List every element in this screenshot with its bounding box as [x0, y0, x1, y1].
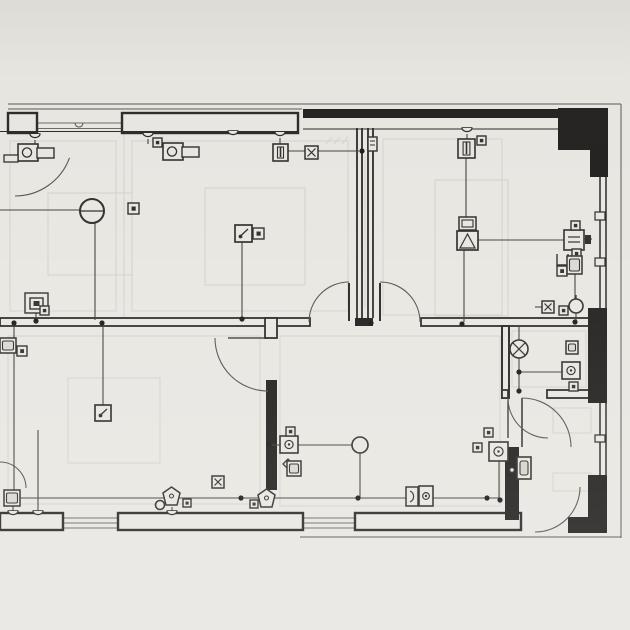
door-arc [309, 282, 349, 322]
wall-pier [266, 380, 277, 490]
small-box-dot [253, 503, 256, 506]
window-vent-icon [75, 123, 83, 127]
small-box-dot [574, 224, 577, 227]
small-box-dot [132, 207, 136, 211]
outlet-icon [564, 230, 584, 250]
small-box-dot [480, 139, 483, 142]
drawing-sheet [0, 0, 630, 630]
small-box-dot [487, 431, 490, 434]
small-box-dot [20, 349, 24, 353]
doorbell-icon [368, 137, 377, 151]
appliance-dot [497, 450, 499, 452]
cabinet-inner [290, 464, 299, 473]
door-arc [508, 398, 548, 438]
wall-segment [502, 390, 508, 398]
wall-segment [355, 513, 521, 530]
small-box-dot [560, 269, 564, 273]
wall-tick [595, 212, 605, 220]
junction-circle-icon [156, 501, 165, 510]
junction-dot [266, 441, 271, 446]
ceiling-puck-icon [228, 131, 238, 135]
cabinet-inner [7, 493, 18, 503]
socket-box-dot [34, 301, 40, 306]
junction-dot [516, 388, 521, 393]
junction-dot [359, 148, 364, 153]
wall-pier [590, 150, 608, 177]
wall-pier [588, 308, 607, 403]
appliance-dot [570, 369, 572, 371]
door-arc [522, 398, 571, 447]
ceiling-puck-icon [167, 511, 177, 515]
ceiling-rose-icon [258, 489, 275, 507]
junction-dot [99, 320, 104, 325]
ceiling-puck-icon [30, 134, 40, 138]
ceiling-puck-icon [33, 511, 43, 515]
guide-rect [280, 336, 500, 506]
wall-pier [303, 109, 558, 118]
ceiling-puck-icon [143, 133, 153, 137]
wall-segment [122, 113, 298, 133]
ceiling-puck-icon [275, 132, 285, 136]
wall-tick [595, 435, 605, 442]
small-box-dot [476, 446, 479, 449]
junction-circle-icon [510, 468, 515, 473]
junction-dot [11, 320, 16, 325]
fixture-base [4, 155, 18, 162]
ceiling-puck-icon [8, 511, 18, 515]
light-fixture-icon [18, 144, 38, 161]
small-box-dot [43, 309, 46, 312]
wall-pier [568, 517, 607, 533]
junction-dot [497, 497, 502, 502]
fixture-arm [182, 147, 199, 157]
junction-circle-icon [352, 437, 368, 453]
light-fixture-icon [163, 143, 183, 160]
plug-tick-icon [585, 235, 591, 244]
small-box-dot [289, 430, 292, 433]
junction-dot [33, 318, 38, 323]
ceiling-puck-icon [462, 128, 472, 132]
guide-rect [553, 473, 591, 491]
guide-line [334, 137, 340, 144]
door-arc [15, 158, 70, 196]
junction-dot [355, 495, 360, 500]
wall-segment [502, 326, 509, 398]
appliance-dot [425, 495, 427, 497]
floor-plan-svg [0, 0, 630, 630]
door-arc [380, 282, 420, 322]
wall-pier [558, 108, 608, 150]
small-box-dot [257, 232, 261, 236]
cabinet-inner [569, 344, 576, 351]
junction-dot [459, 321, 464, 326]
door-arc [0, 462, 26, 488]
junction-dot [484, 495, 489, 500]
fixture-arm [37, 148, 54, 158]
small-box-dot [572, 385, 575, 388]
pen-dot [99, 414, 103, 418]
appliance-dot [288, 443, 290, 445]
wall-segment [265, 318, 277, 338]
wall-tick [595, 258, 605, 266]
guide-rect [68, 378, 160, 463]
guide-rect [10, 141, 116, 311]
guide-line [326, 137, 332, 144]
small-box-dot [562, 309, 565, 312]
sensor-icon [569, 299, 583, 313]
guide-rect [383, 139, 502, 315]
ceiling-rose-icon [163, 487, 180, 505]
cabinet-inner [570, 259, 580, 271]
junction-dot [516, 369, 521, 374]
wall-segment [118, 513, 303, 530]
door-leaf-inner [520, 461, 528, 475]
small-box-dot [575, 252, 578, 255]
wall-fixture-icon [406, 487, 418, 506]
wall-segment [421, 318, 593, 326]
guide-line [342, 137, 348, 144]
guide-rect [553, 408, 591, 433]
junction-dot [238, 495, 243, 500]
small-box-dot [186, 502, 189, 505]
cabinet-inner [3, 341, 14, 350]
small-box-dot [156, 141, 159, 144]
wall-segment [0, 318, 310, 326]
pen-dot [239, 235, 243, 239]
wall-pier [588, 475, 607, 520]
junction-dot [368, 320, 373, 325]
junction-dot [239, 316, 244, 321]
junction-dot [572, 319, 577, 324]
wall-segment [0, 513, 63, 530]
wall-segment [8, 113, 37, 133]
